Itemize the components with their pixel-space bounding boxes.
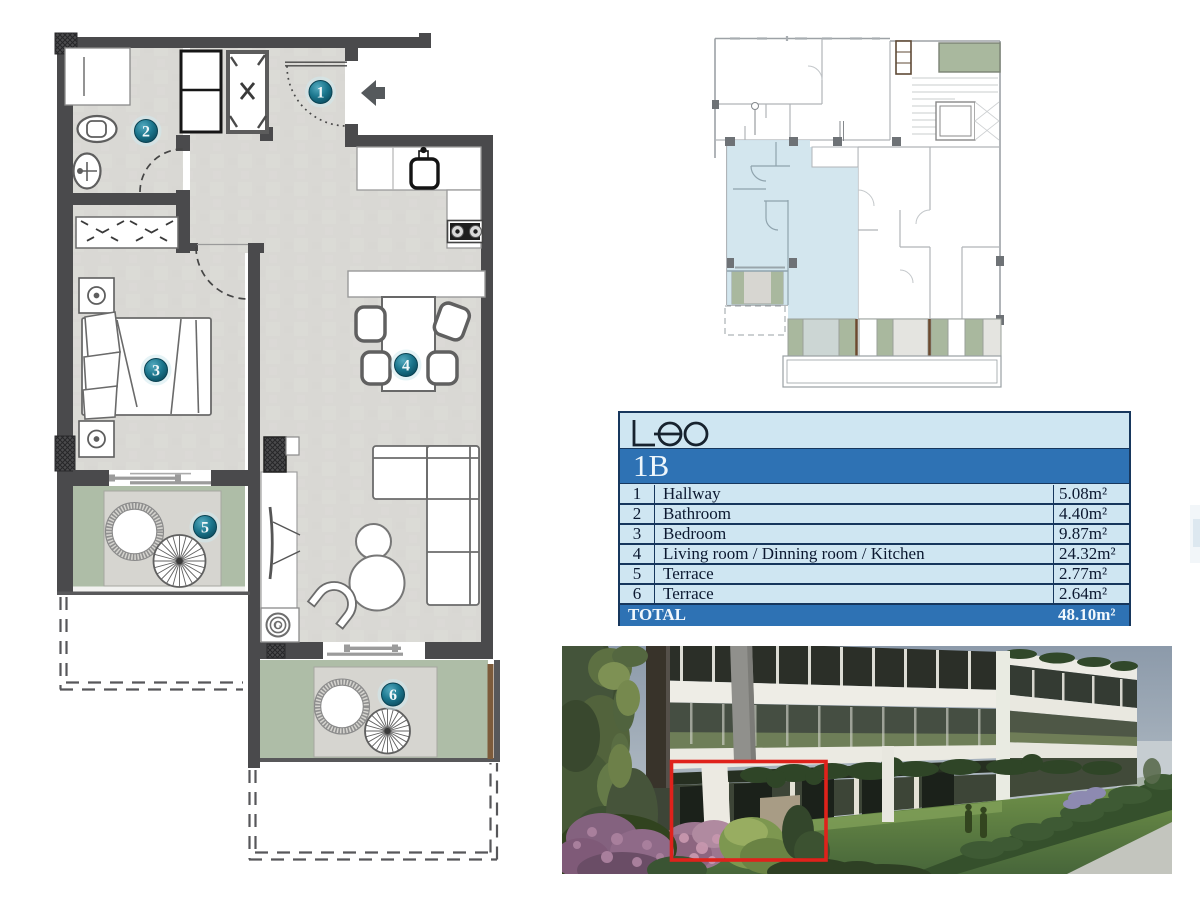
svg-text:4: 4: [402, 358, 410, 375]
svg-text:G: G: [275, 621, 282, 631]
svg-text:6: 6: [389, 687, 397, 704]
svg-text:5: 5: [201, 520, 209, 537]
svg-text:1: 1: [317, 85, 325, 102]
svg-text:3: 3: [152, 363, 160, 380]
svg-text:2: 2: [142, 124, 150, 141]
